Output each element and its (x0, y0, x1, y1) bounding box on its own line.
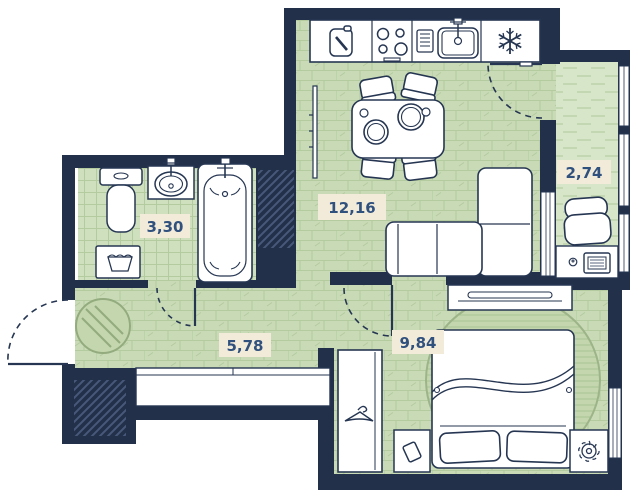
entry-shaft-hatch (74, 380, 126, 436)
nightstand-left (394, 430, 430, 472)
bathtub (198, 158, 252, 282)
doormat (76, 299, 130, 353)
dresser (448, 285, 572, 310)
laundry-basket-icon (108, 255, 132, 271)
laundry-box (96, 246, 140, 278)
area-value: 2,74 (565, 164, 602, 182)
plate (360, 109, 368, 117)
armchair (563, 196, 612, 245)
laptop-icon (584, 253, 610, 273)
plate (368, 124, 385, 141)
area-value: 12,16 (328, 199, 375, 217)
fridge-handle (520, 62, 532, 66)
nightstand-right (570, 430, 608, 472)
cutting-board-icon (330, 26, 352, 56)
area-value: 9,84 (399, 334, 436, 352)
plate (422, 108, 430, 116)
bedroom-window (609, 388, 621, 458)
dish-rack-icon (417, 30, 433, 52)
area-value: 3,30 (146, 218, 183, 236)
mouse-icon (569, 258, 577, 266)
balcony-door-gap-floor (540, 64, 556, 120)
floor-plan: 12,16 2,74 3,30 5,78 9,84 (0, 0, 638, 500)
wardrobe (338, 350, 382, 472)
pillow (439, 430, 500, 463)
plate (402, 108, 421, 127)
area-label-bedroom: 9,84 (392, 330, 444, 354)
vent-shaft-hatch (258, 170, 294, 248)
living-balcony-window (541, 192, 555, 276)
bed (432, 330, 574, 468)
hallway-closet (136, 368, 330, 406)
area-label-hallway: 5,78 (219, 333, 271, 357)
entry-door (8, 300, 68, 364)
area-label-kitchen-living: 12,16 (318, 194, 386, 220)
pillow (506, 431, 567, 463)
door-swing-arc (8, 300, 68, 364)
area-label-bathroom: 3,30 (140, 214, 190, 238)
area-label-balcony: 2,74 (557, 160, 611, 184)
area-value: 5,78 (226, 337, 263, 355)
balcony-desk (556, 246, 618, 278)
